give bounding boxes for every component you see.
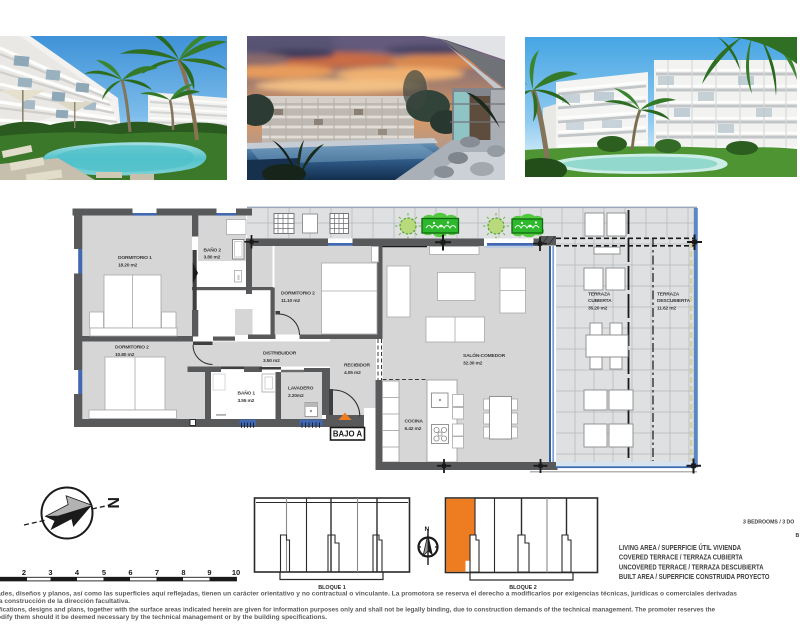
svg-text:2.20m2: 2.20m2 (288, 393, 304, 399)
svg-text:10.80 m2: 10.80 m2 (115, 352, 135, 358)
svg-text:32.30 m2: 32.30 m2 (463, 361, 483, 367)
svg-text:3.55 m2: 3.55 m2 (238, 398, 255, 404)
svg-text:BAJO A: BAJO A (333, 430, 363, 439)
svg-text:DISTRIBUIDOR: DISTRIBUIDOR (263, 351, 297, 357)
svg-text:DORMITORIO 2: DORMITORIO 2 (115, 345, 149, 351)
svg-text:18.20 m2: 18.20 m2 (118, 263, 138, 269)
svg-text:11.10 m2: 11.10 m2 (281, 298, 300, 304)
svg-text:LIVING AREA / SUPERFICIE ÚTIL: LIVING AREA / SUPERFICIE ÚTIL VIVIENDA (619, 542, 741, 552)
svg-text:N: N (104, 497, 121, 509)
svg-text:TERRAZA: TERRAZA (588, 292, 611, 298)
svg-text:COVERED TERRACE / TERRAZA CUBI: COVERED TERRACE / TERRAZA CUBIERTA (619, 554, 743, 562)
svg-text:ifications, designs and plans,: ifications, designs and plans, together … (0, 607, 716, 614)
svg-text:DORMITORIO 2: DORMITORIO 2 (281, 291, 315, 297)
svg-text:3: 3 (48, 568, 52, 577)
svg-text:BAÑO 2: BAÑO 2 (204, 247, 222, 254)
svg-text:BUILT AREA / SUPERFICIE CONSTR: BUILT AREA / SUPERFICIE CONSTRUIDA PROYE… (619, 574, 770, 582)
svg-text:9: 9 (207, 568, 211, 577)
svg-text:odify them should it be deemed: odify them should it be deemed necessary… (0, 614, 327, 621)
svg-text:UNCOVERED TERRACE / TERRAZA DE: UNCOVERED TERRACE / TERRAZA DESCUBIERTA (619, 564, 764, 572)
svg-text:COCINA: COCINA (405, 419, 424, 425)
svg-text:3.50 m2: 3.50 m2 (263, 358, 280, 364)
svg-text:B: B (796, 533, 800, 539)
svg-text:LAVADERO: LAVADERO (288, 386, 314, 392)
svg-text:10: 10 (232, 568, 240, 577)
svg-text:4.05 m2: 4.05 m2 (344, 370, 361, 376)
svg-text:2: 2 (22, 568, 26, 577)
svg-text:ades, diseños y planos, así co: ades, diseños y planos, así como las sup… (0, 591, 738, 598)
svg-text:RECIBIDOR: RECIBIDOR (344, 363, 370, 369)
svg-text:4: 4 (75, 568, 80, 577)
svg-text:CUBIERTA: CUBIERTA (588, 298, 612, 304)
svg-text:la construcción de la direcció: la construcción de la dirección facultat… (0, 598, 130, 605)
svg-text:8: 8 (181, 568, 185, 577)
svg-text:TERRAZA: TERRAZA (657, 292, 680, 298)
svg-text:N: N (425, 526, 430, 533)
svg-text:3 BEDROOMS / 3 DO: 3 BEDROOMS / 3 DO (743, 520, 794, 526)
svg-text:DORMITORIO 1: DORMITORIO 1 (118, 255, 152, 261)
svg-text:BAÑO 1: BAÑO 1 (238, 390, 256, 397)
svg-text:5: 5 (102, 568, 106, 577)
svg-text:7: 7 (155, 568, 159, 577)
svg-text:6.42 m2: 6.42 m2 (405, 426, 422, 432)
svg-text:6: 6 (128, 568, 132, 577)
svg-text:11.62 m2: 11.62 m2 (657, 306, 676, 312)
svg-text:3.80 m2: 3.80 m2 (204, 255, 221, 261)
svg-text:DESCUBIERTA: DESCUBIERTA (657, 298, 691, 304)
svg-text:35.20 m2: 35.20 m2 (588, 306, 608, 312)
